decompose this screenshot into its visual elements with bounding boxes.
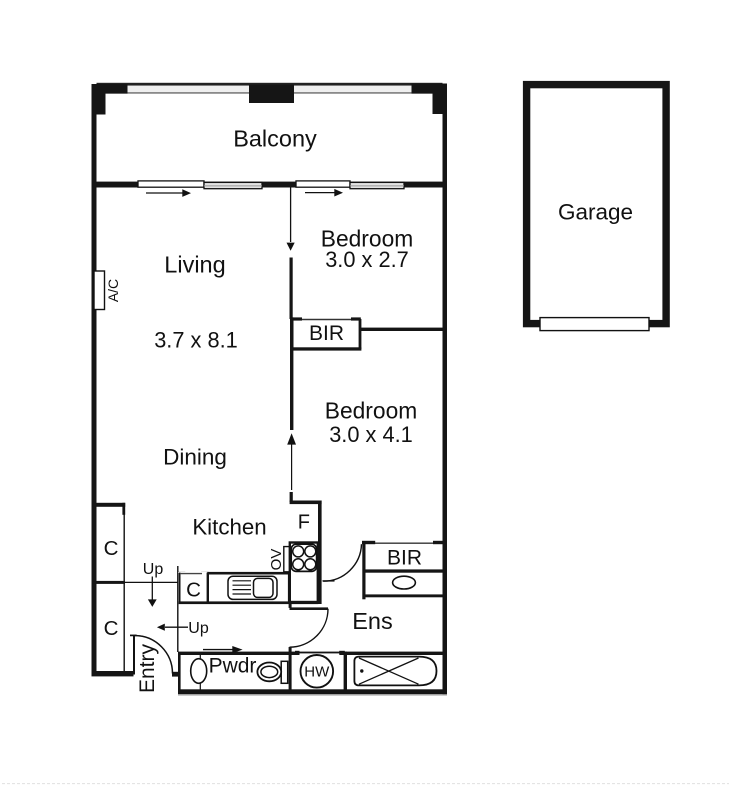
svg-text:Kitchen: Kitchen	[192, 515, 266, 540]
svg-text:Garage: Garage	[558, 200, 633, 225]
svg-text:OV: OV	[268, 549, 285, 571]
svg-text:Balcony: Balcony	[233, 126, 317, 152]
svg-text:Living: Living	[164, 252, 225, 278]
svg-text:Bedroom: Bedroom	[325, 398, 418, 424]
svg-text:HW: HW	[304, 664, 330, 681]
svg-text:Ens: Ens	[352, 608, 393, 634]
svg-text:F: F	[298, 512, 310, 534]
svg-text:Up: Up	[188, 620, 209, 637]
svg-text:BIR: BIR	[387, 547, 422, 570]
svg-text:Up: Up	[143, 561, 164, 578]
svg-text:3.0 x 4.1: 3.0 x 4.1	[329, 422, 413, 447]
svg-text:3.0 x 2.7: 3.0 x 2.7	[325, 247, 409, 272]
svg-text:C: C	[186, 579, 201, 602]
svg-text:C: C	[104, 617, 119, 640]
svg-text:Entry: Entry	[136, 643, 159, 693]
svg-text:Pwdr: Pwdr	[209, 655, 257, 678]
svg-text:BIR: BIR	[309, 322, 344, 345]
svg-text:A/C: A/C	[105, 279, 121, 302]
svg-text:C: C	[104, 537, 119, 560]
svg-text:3.7 x 8.1: 3.7 x 8.1	[154, 328, 238, 353]
svg-text:Dining: Dining	[163, 445, 227, 470]
